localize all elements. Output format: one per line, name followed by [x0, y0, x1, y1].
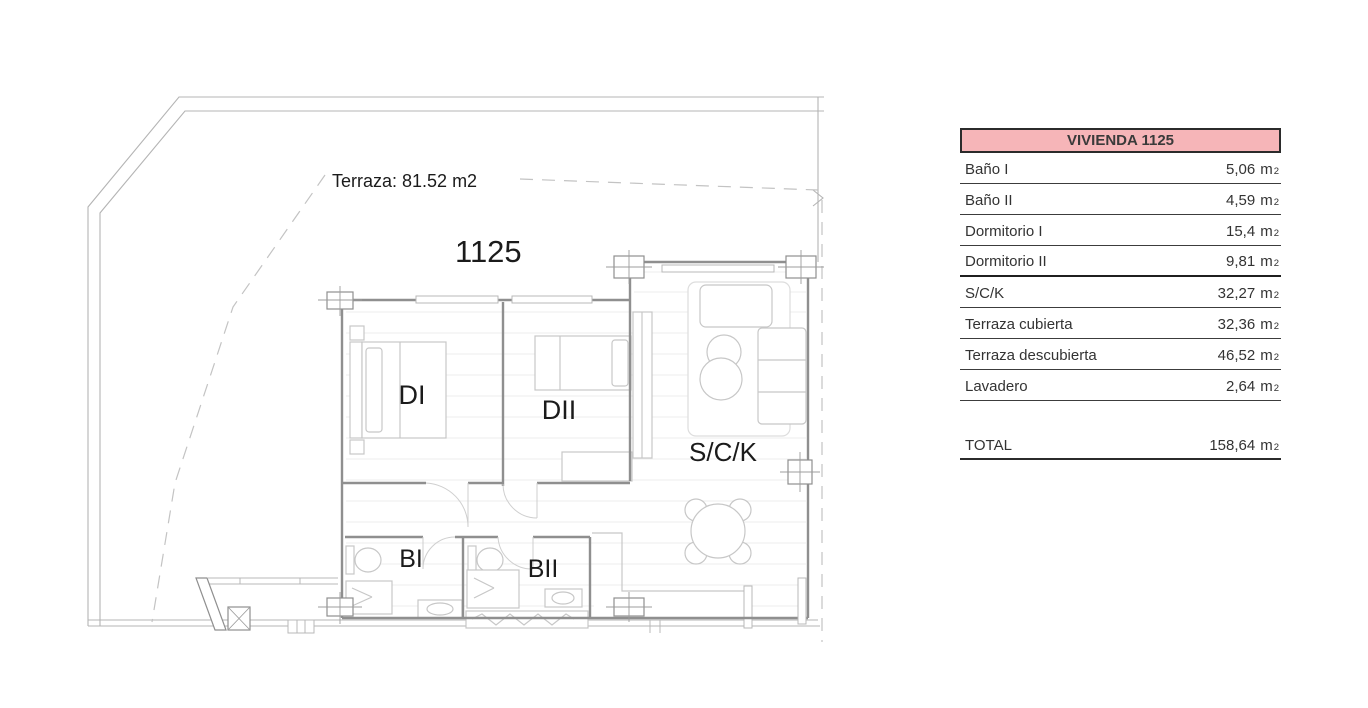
area-value: 4,59m2 — [1226, 192, 1279, 209]
total-label: TOTAL — [965, 437, 1012, 454]
screenshot-root: Terraza: 81.52 m2 1125 DI DII S/C/K BI B… — [0, 0, 1368, 708]
area-sup: 2 — [1274, 229, 1279, 239]
area-unit: m — [1260, 285, 1273, 302]
room-label-bano-i: BI — [399, 545, 423, 573]
table-title: VIVIENDA 1125 — [960, 128, 1281, 153]
area-sup: 2 — [1274, 291, 1279, 301]
table-row: Terraza cubierta 32,36m2 — [960, 308, 1281, 339]
area-number: 9,81 — [1226, 253, 1255, 270]
room-label-bano-ii: BII — [528, 555, 559, 583]
total-value: 158,64m2 — [1209, 437, 1279, 454]
area-number: 32,36 — [1218, 316, 1256, 333]
room-label: Baño I — [965, 161, 1008, 178]
area-unit: m — [1260, 253, 1273, 270]
area-value: 32,36m2 — [1218, 316, 1279, 333]
room-label: Terraza cubierta — [965, 316, 1073, 333]
area-number: 15,4 — [1226, 223, 1255, 240]
area-unit: m — [1260, 161, 1273, 178]
table-row: Terraza descubierta 46,52m2 — [960, 339, 1281, 370]
room-label: S/C/K — [965, 285, 1004, 302]
area-value: 46,52m2 — [1218, 347, 1279, 364]
desk — [562, 452, 632, 481]
wardrobe-strip — [633, 312, 652, 458]
area-value: 15,4m2 — [1226, 223, 1279, 240]
dining-table — [685, 499, 751, 564]
area-table: VIVIENDA 1125 Baño I 5,06m2 Baño II 4,59… — [960, 128, 1281, 460]
area-sup: 2 — [1274, 322, 1279, 332]
room-label: Dormitorio I — [965, 223, 1043, 240]
area-number: 4,59 — [1226, 192, 1255, 209]
area-number: 5,06 — [1226, 161, 1255, 178]
room-label-salon-cocina: S/C/K — [689, 437, 758, 467]
table-row: S/C/K 32,27m2 — [960, 277, 1281, 308]
room-label: Lavadero — [965, 378, 1028, 395]
area-value: 9,81m2 — [1226, 253, 1279, 270]
area-unit: m — [1260, 192, 1273, 209]
room-label: Terraza descubierta — [965, 347, 1097, 364]
area-sup: 2 — [1274, 198, 1279, 208]
table-row: Baño I 5,06m2 — [960, 153, 1281, 184]
area-value: 32,27m2 — [1218, 285, 1279, 302]
area-number: 158,64 — [1209, 437, 1255, 454]
room-label-dormitorio-ii: DII — [542, 395, 577, 425]
unit-number-label: 1125 — [455, 234, 522, 269]
table-total-row: TOTAL 158,64m2 — [960, 430, 1281, 460]
area-sup: 2 — [1274, 259, 1279, 269]
table-row: Baño II 4,59m2 — [960, 184, 1281, 215]
laundry-strip — [466, 611, 588, 628]
area-unit: m — [1260, 316, 1273, 333]
table-title-text: VIVIENDA 1125 — [1067, 132, 1174, 149]
area-number: 2,64 — [1226, 378, 1255, 395]
table-row: Dormitorio II 9,81m2 — [960, 246, 1281, 277]
area-unit: m — [1260, 223, 1273, 240]
area-unit: m — [1260, 378, 1273, 395]
area-sup: 2 — [1274, 384, 1279, 394]
area-sup: 2 — [1274, 353, 1279, 363]
sofa — [758, 328, 806, 424]
living-area-furniture — [688, 282, 806, 436]
area-unit: m — [1260, 437, 1273, 454]
table-row: Dormitorio I 15,4m2 — [960, 215, 1281, 246]
area-value: 2,64m2 — [1226, 378, 1279, 395]
table-row: Lavadero 2,64m2 — [960, 370, 1281, 401]
area-number: 32,27 — [1218, 285, 1256, 302]
terrace-area-label: Terraza: 81.52 m2 — [332, 171, 477, 191]
room-label: Dormitorio II — [965, 253, 1047, 270]
area-sup: 2 — [1274, 167, 1279, 177]
area-number: 46,52 — [1218, 347, 1256, 364]
area-value: 5,06m2 — [1226, 161, 1279, 178]
area-unit: m — [1260, 347, 1273, 364]
room-label: Baño II — [965, 192, 1013, 209]
area-sup: 2 — [1274, 443, 1279, 453]
room-label-dormitorio-i: DI — [399, 380, 426, 410]
